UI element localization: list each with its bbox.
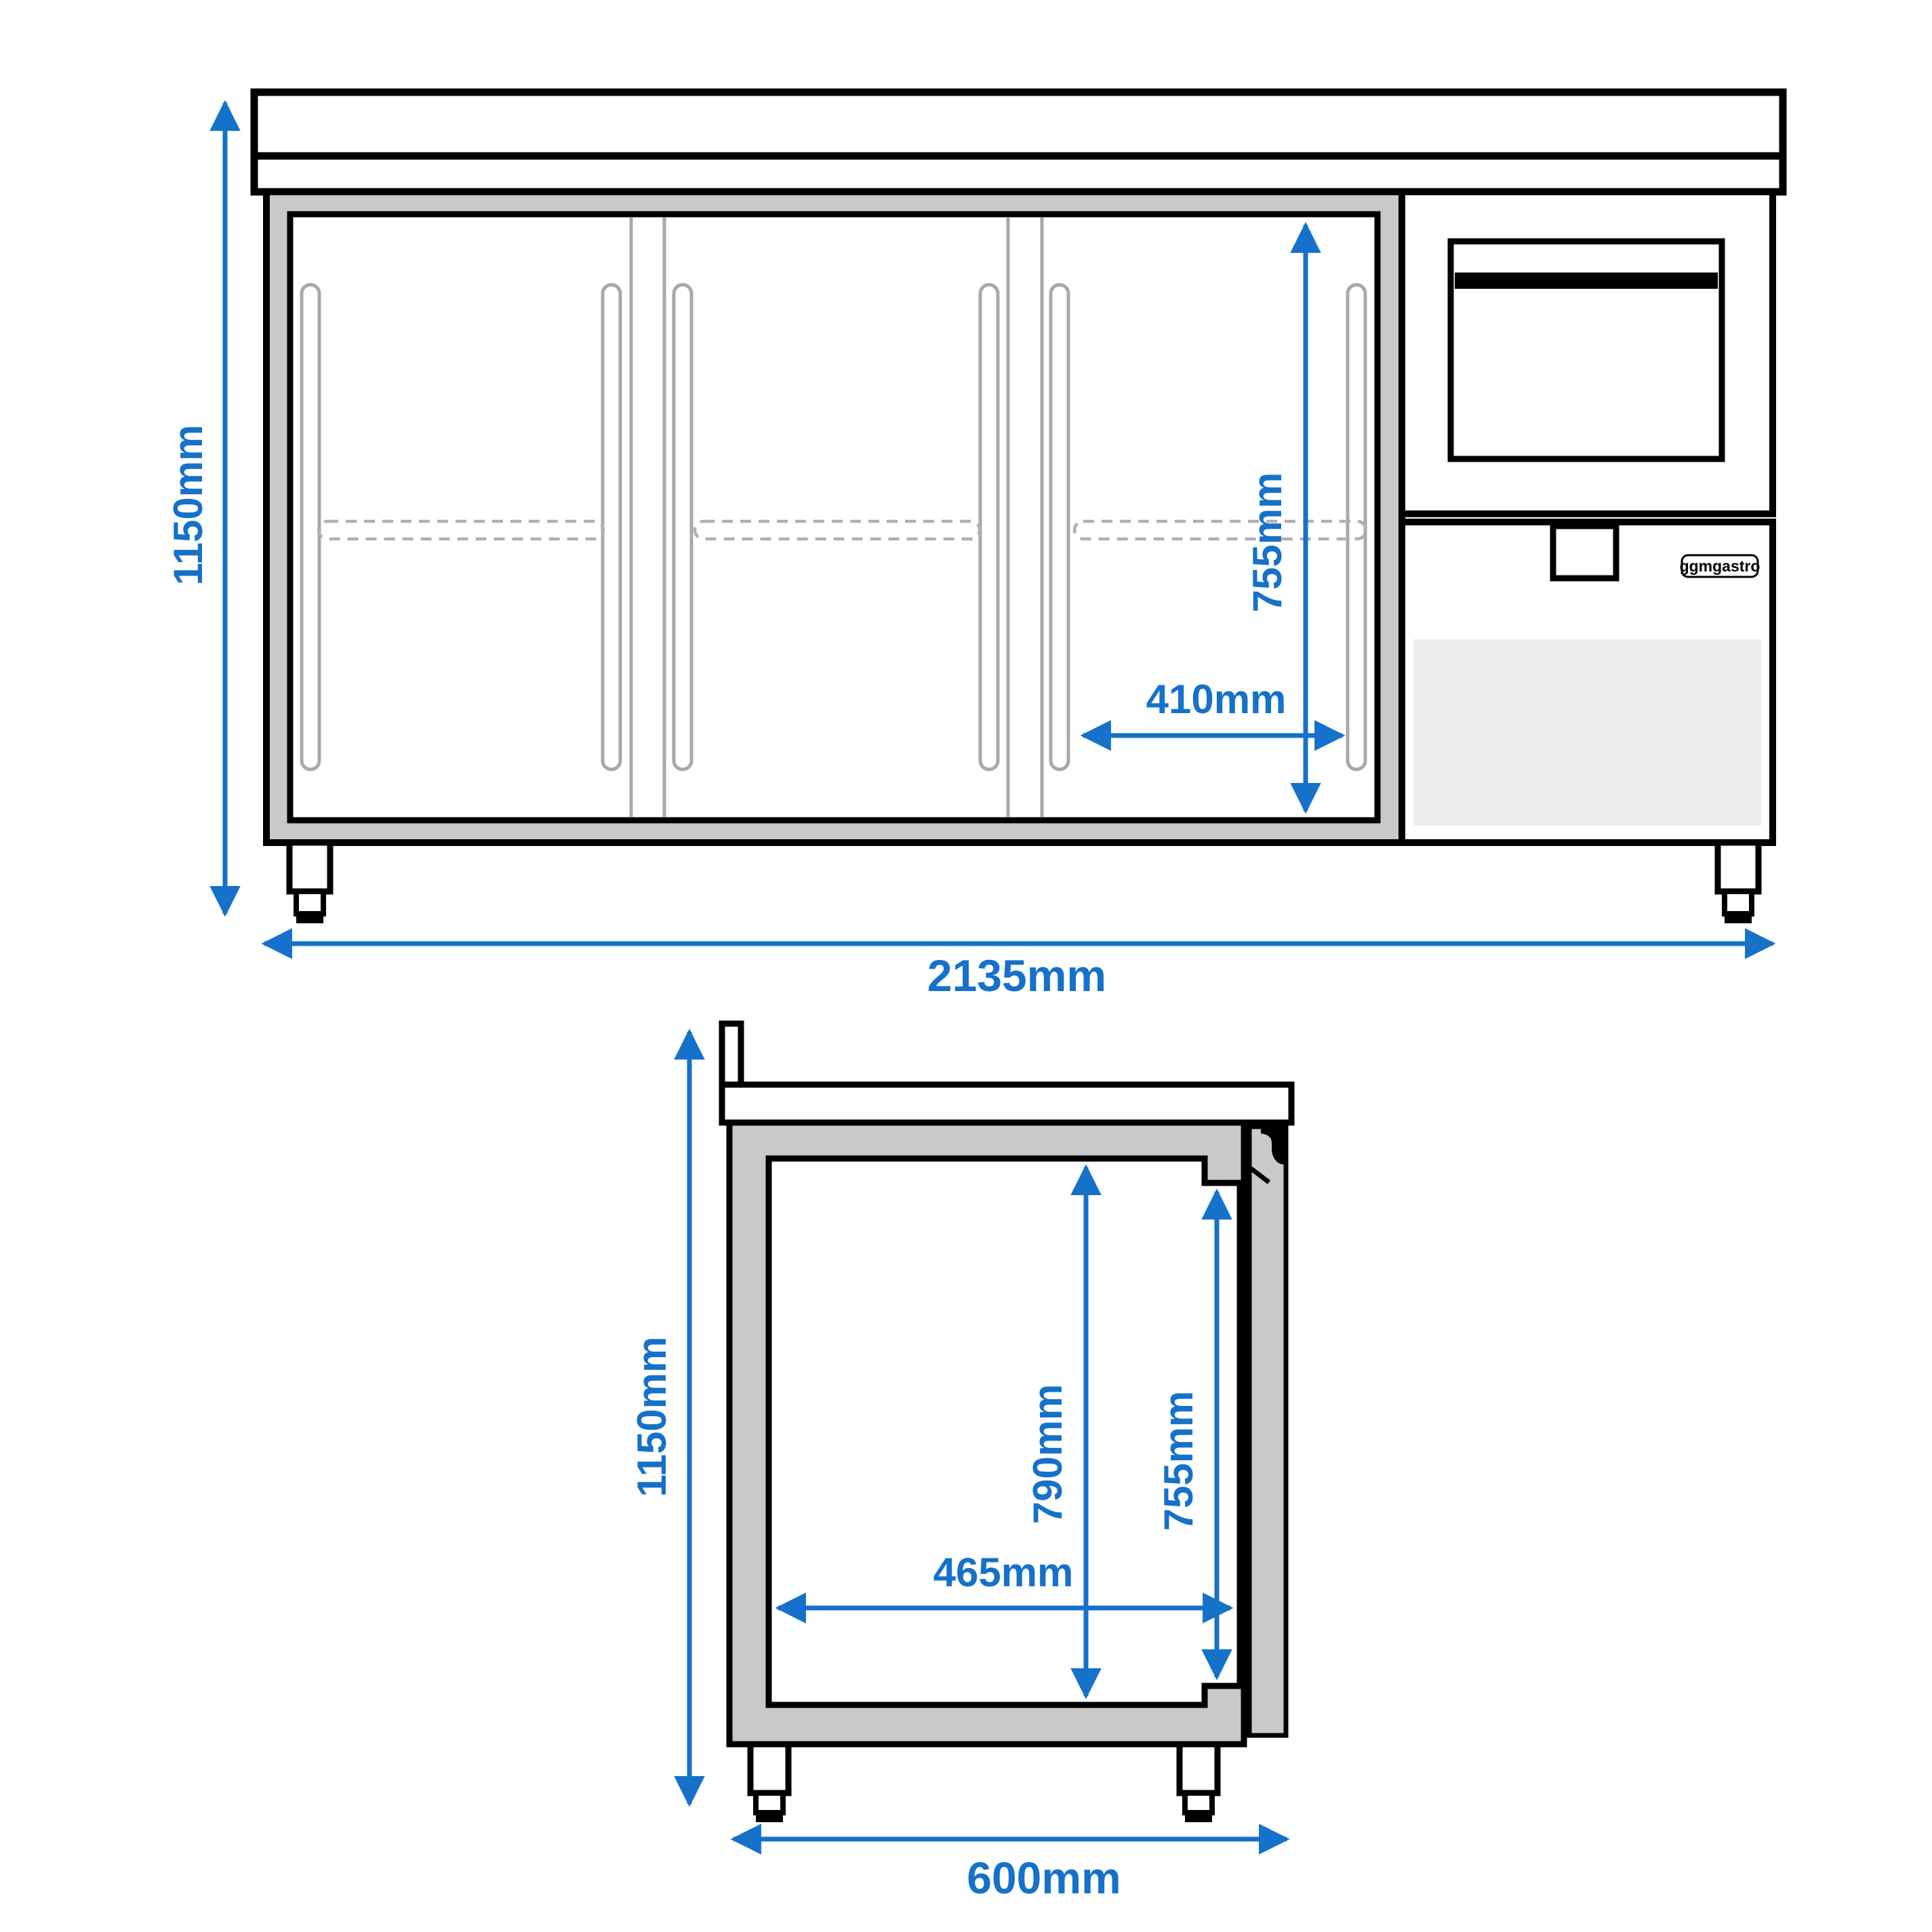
front-left-foot bbox=[289, 843, 330, 923]
foot-upper bbox=[1718, 843, 1758, 891]
foot-base bbox=[296, 912, 323, 923]
side-left-foot bbox=[750, 1744, 788, 1822]
inner-depth-label: 465mm bbox=[933, 1550, 1074, 1595]
door-area bbox=[290, 214, 1377, 820]
ventilation-panel bbox=[1413, 639, 1761, 826]
door-height-label: 755mm bbox=[1245, 472, 1290, 613]
side-depth-label: 600mm bbox=[967, 1853, 1121, 1903]
foot-base bbox=[1185, 1812, 1212, 1822]
foot-lower bbox=[1725, 891, 1752, 914]
front-width-label: 2135mm bbox=[927, 950, 1106, 1001]
inner-height-back-label: 790mm bbox=[1025, 1384, 1070, 1525]
side-view: 1150mm 790mm 755mm 465mm 600mm bbox=[629, 1024, 1291, 1903]
foot-upper bbox=[750, 1744, 788, 1793]
side-right-foot bbox=[1180, 1744, 1217, 1822]
door2-left-handle bbox=[674, 285, 691, 769]
worktop-front-edge bbox=[254, 156, 1783, 192]
foot-upper bbox=[1180, 1744, 1217, 1793]
foot-base bbox=[1725, 912, 1752, 923]
door3-left-handle bbox=[1051, 285, 1068, 769]
control-switch-box bbox=[1553, 526, 1616, 578]
door1-left-handle bbox=[302, 285, 319, 769]
front-view: ggmgastro 1150mm 2135mm 755mm 410mm bbox=[165, 92, 1783, 1001]
foot-lower bbox=[296, 891, 323, 914]
brand-logo-label: ggmgastro bbox=[1680, 557, 1760, 575]
door-width-label: 410mm bbox=[1146, 677, 1287, 722]
side-height-label: 1150mm bbox=[629, 1337, 675, 1497]
door2-right-handle bbox=[980, 285, 998, 769]
ice-maker-slot bbox=[1455, 273, 1718, 289]
door1-right-handle bbox=[603, 285, 620, 769]
foot-lower bbox=[756, 1793, 783, 1813]
worktop-side bbox=[722, 1085, 1291, 1123]
door-side-profile bbox=[1249, 1127, 1286, 1735]
foot-lower bbox=[1185, 1793, 1212, 1813]
foot-base bbox=[756, 1812, 783, 1822]
front-height-label: 1150mm bbox=[165, 425, 211, 586]
foot-upper bbox=[289, 843, 330, 891]
inner-height-front-label: 755mm bbox=[1156, 1391, 1201, 1531]
rear-upstand bbox=[722, 1024, 741, 1088]
worktop-top bbox=[254, 92, 1783, 156]
refrigerated-counter-dimension-drawing: ggmgastro 1150mm 2135mm 755mm 410mm bbox=[0, 0, 1932, 1932]
front-right-foot bbox=[1718, 843, 1758, 923]
door3-right-handle bbox=[1348, 285, 1365, 769]
